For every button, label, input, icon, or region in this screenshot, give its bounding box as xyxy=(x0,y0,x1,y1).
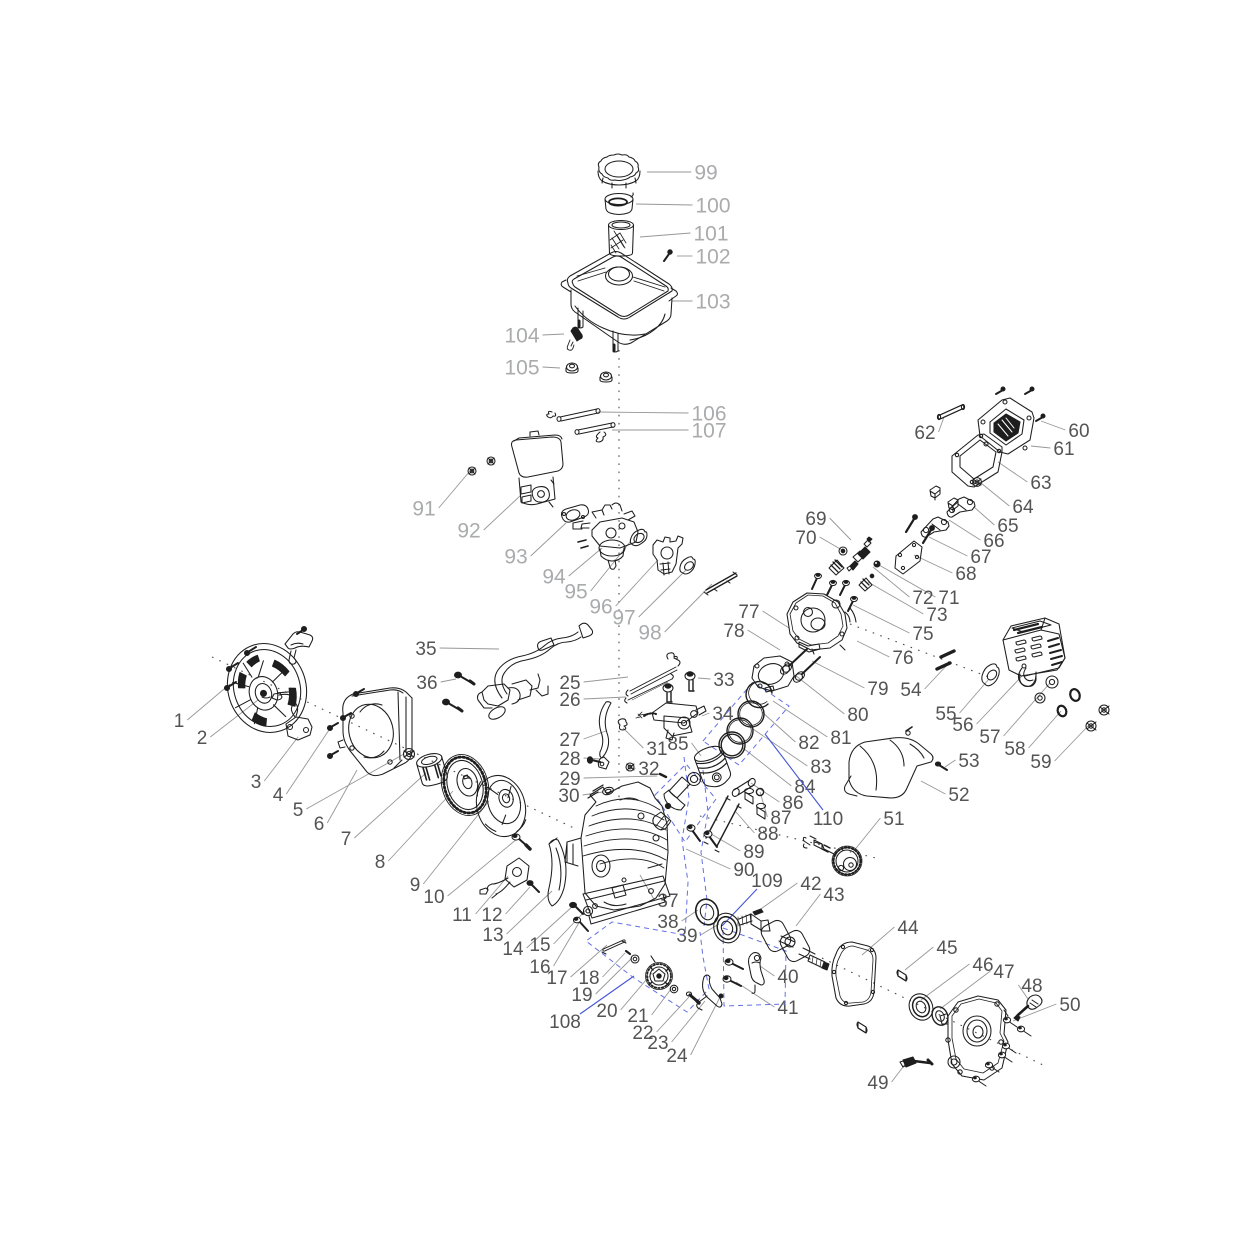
svg-text:33: 33 xyxy=(713,670,734,691)
svg-text:70: 70 xyxy=(795,528,816,549)
svg-text:80: 80 xyxy=(847,705,868,726)
svg-text:64: 64 xyxy=(1012,497,1034,518)
svg-text:81: 81 xyxy=(830,728,851,749)
svg-text:46: 46 xyxy=(972,955,993,976)
svg-text:7: 7 xyxy=(341,829,352,850)
svg-text:9: 9 xyxy=(410,875,421,896)
svg-text:76: 76 xyxy=(892,648,913,669)
svg-text:17: 17 xyxy=(546,968,567,989)
svg-text:62: 62 xyxy=(914,423,935,444)
svg-text:109: 109 xyxy=(751,871,783,892)
svg-text:20: 20 xyxy=(596,1001,617,1022)
svg-text:73: 73 xyxy=(926,605,947,626)
svg-text:27: 27 xyxy=(559,730,580,751)
svg-text:97: 97 xyxy=(612,607,635,630)
svg-text:10: 10 xyxy=(423,887,444,908)
svg-text:41: 41 xyxy=(777,998,798,1019)
svg-text:110: 110 xyxy=(813,809,843,830)
svg-text:48: 48 xyxy=(1021,976,1042,997)
svg-text:108: 108 xyxy=(549,1012,581,1033)
svg-text:100: 100 xyxy=(695,195,730,218)
svg-text:42: 42 xyxy=(800,874,821,895)
svg-text:32: 32 xyxy=(638,759,659,780)
svg-text:103: 103 xyxy=(695,291,730,314)
svg-text:107: 107 xyxy=(691,420,726,443)
svg-text:36: 36 xyxy=(416,673,437,694)
svg-text:5: 5 xyxy=(293,800,304,821)
svg-text:15: 15 xyxy=(529,935,550,956)
svg-text:59: 59 xyxy=(1030,752,1051,773)
svg-text:6: 6 xyxy=(314,814,325,835)
svg-text:79: 79 xyxy=(867,679,888,700)
svg-text:38: 38 xyxy=(657,912,678,933)
svg-text:51: 51 xyxy=(883,809,904,830)
svg-text:91: 91 xyxy=(412,498,435,521)
svg-text:102: 102 xyxy=(695,246,730,269)
svg-text:94: 94 xyxy=(542,566,566,589)
svg-text:43: 43 xyxy=(823,885,844,906)
svg-text:30: 30 xyxy=(558,786,579,807)
svg-text:12: 12 xyxy=(481,905,502,926)
svg-text:35: 35 xyxy=(415,639,436,660)
svg-text:56: 56 xyxy=(952,715,973,736)
svg-text:52: 52 xyxy=(948,785,969,806)
svg-text:13: 13 xyxy=(482,925,503,946)
svg-text:77: 77 xyxy=(738,602,759,623)
svg-text:19: 19 xyxy=(571,985,592,1006)
svg-text:95: 95 xyxy=(564,581,587,604)
svg-text:85: 85 xyxy=(667,734,688,755)
svg-text:54: 54 xyxy=(900,680,922,701)
svg-text:63: 63 xyxy=(1030,473,1051,494)
svg-text:61: 61 xyxy=(1053,439,1074,460)
svg-text:47: 47 xyxy=(993,962,1014,983)
svg-text:99: 99 xyxy=(694,162,717,185)
svg-text:49: 49 xyxy=(867,1073,888,1094)
svg-text:28: 28 xyxy=(559,749,580,770)
svg-text:82: 82 xyxy=(798,733,819,754)
svg-text:24: 24 xyxy=(666,1046,688,1067)
svg-text:68: 68 xyxy=(955,564,976,585)
svg-text:69: 69 xyxy=(805,509,826,530)
svg-text:53: 53 xyxy=(958,751,979,772)
svg-text:98: 98 xyxy=(638,622,661,645)
svg-text:3: 3 xyxy=(251,772,262,793)
svg-text:96: 96 xyxy=(589,596,612,619)
svg-text:45: 45 xyxy=(936,938,957,959)
svg-text:8: 8 xyxy=(375,852,386,873)
svg-text:26: 26 xyxy=(559,690,580,711)
svg-text:31: 31 xyxy=(646,739,667,760)
svg-text:105: 105 xyxy=(504,357,539,380)
svg-text:50: 50 xyxy=(1059,995,1080,1016)
svg-text:104: 104 xyxy=(504,325,539,348)
svg-text:2: 2 xyxy=(197,728,208,749)
svg-text:4: 4 xyxy=(273,785,284,806)
svg-text:57: 57 xyxy=(979,727,1000,748)
svg-text:1: 1 xyxy=(174,711,185,732)
svg-text:44: 44 xyxy=(897,918,919,939)
svg-text:58: 58 xyxy=(1004,739,1025,760)
svg-text:92: 92 xyxy=(457,520,480,543)
svg-text:101: 101 xyxy=(693,223,728,246)
svg-text:37: 37 xyxy=(657,891,678,912)
svg-text:14: 14 xyxy=(502,939,524,960)
svg-text:93: 93 xyxy=(504,546,527,569)
svg-text:78: 78 xyxy=(723,621,744,642)
svg-text:83: 83 xyxy=(810,757,831,778)
svg-text:40: 40 xyxy=(777,967,798,988)
svg-text:11: 11 xyxy=(452,905,472,926)
svg-text:75: 75 xyxy=(912,624,933,645)
svg-text:39: 39 xyxy=(676,926,697,947)
svg-text:23: 23 xyxy=(647,1033,668,1054)
